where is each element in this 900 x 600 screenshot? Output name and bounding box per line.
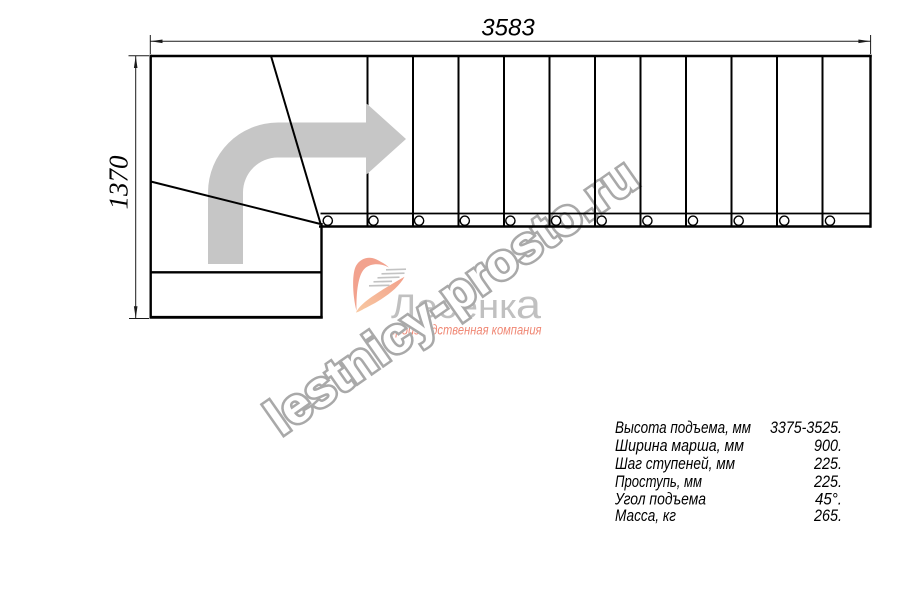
svg-text:265.: 265. (813, 506, 842, 525)
svg-text:Масса, кг: Масса, кг (615, 506, 676, 525)
svg-text:225.: 225. (813, 472, 842, 491)
svg-text:1370: 1370 (104, 155, 134, 210)
svg-text:Ширина марша, мм: Ширина марша, мм (615, 436, 744, 455)
svg-text:900.: 900. (814, 436, 842, 455)
svg-text:Проступь, мм: Проступь, мм (615, 472, 702, 491)
svg-text:Шаг ступеней, мм: Шаг ступеней, мм (615, 454, 735, 473)
svg-text:225.: 225. (813, 454, 842, 473)
svg-text:3375-3525.: 3375-3525. (770, 418, 842, 437)
svg-text:3583: 3583 (481, 15, 535, 42)
svg-text:Высота подъема, мм: Высота подъема, мм (615, 418, 751, 437)
